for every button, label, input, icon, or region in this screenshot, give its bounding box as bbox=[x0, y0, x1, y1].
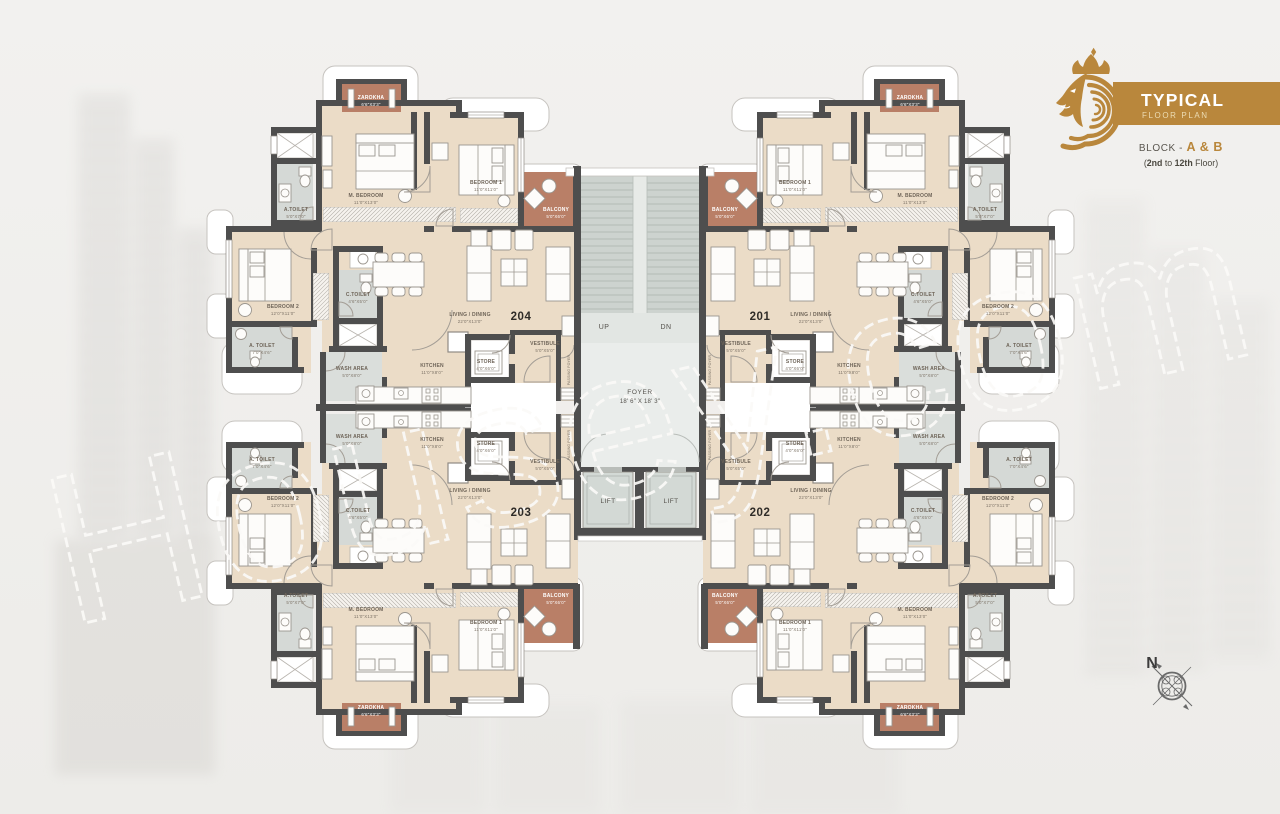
svg-text:7'0"X4'6": 7'0"X4'6" bbox=[252, 350, 272, 355]
svg-text:KITCHEN: KITCHEN bbox=[837, 437, 861, 443]
svg-text:6'6"X3'3": 6'6"X3'3" bbox=[361, 102, 381, 107]
svg-text:5'0"X8'0": 5'0"X8'0" bbox=[342, 373, 362, 378]
svg-text:12'0"X11'0": 12'0"X11'0" bbox=[986, 311, 1010, 316]
svg-text:LIVING / DINING: LIVING / DINING bbox=[790, 312, 831, 318]
svg-text:M. BEDROOM: M. BEDROOM bbox=[348, 193, 383, 199]
svg-text:PASSING FOYER: PASSING FOYER bbox=[708, 355, 712, 386]
svg-text:STORE: STORE bbox=[786, 441, 805, 447]
svg-text:6'6"X3'3": 6'6"X3'3" bbox=[900, 102, 920, 107]
svg-text:BEDROOM 2: BEDROOM 2 bbox=[982, 496, 1014, 502]
svg-text:LIVING / DINING: LIVING / DINING bbox=[790, 488, 831, 494]
svg-text:FOYER: FOYER bbox=[627, 389, 652, 396]
svg-text:PASSING FOYER: PASSING FOYER bbox=[567, 355, 571, 386]
svg-text:6'6"X3'3": 6'6"X3'3" bbox=[361, 712, 381, 717]
svg-text:M. BEDROOM: M. BEDROOM bbox=[897, 193, 932, 199]
svg-text:4'6"X5'0": 4'6"X5'0" bbox=[348, 515, 368, 520]
svg-text:M. BEDROOM: M. BEDROOM bbox=[897, 607, 932, 613]
svg-text:A.TOILET: A.TOILET bbox=[284, 207, 308, 213]
svg-text:C.TOILET: C.TOILET bbox=[911, 292, 935, 298]
svg-text:5'0"X6'0": 5'0"X6'0" bbox=[715, 214, 735, 219]
svg-text:11'0"X8'0": 11'0"X8'0" bbox=[838, 370, 860, 375]
svg-text:6'6"X3'3": 6'6"X3'3" bbox=[900, 712, 920, 717]
svg-text:11'0"X8'0": 11'0"X8'0" bbox=[838, 444, 860, 449]
svg-text:7'0"X4'6": 7'0"X4'6" bbox=[1009, 464, 1029, 469]
svg-text:5'0"X7'0": 5'0"X7'0" bbox=[975, 214, 995, 219]
svg-text:BALCONY: BALCONY bbox=[712, 593, 739, 599]
svg-text:A.TOILET: A.TOILET bbox=[284, 593, 308, 599]
svg-text:TYPICAL: TYPICAL bbox=[1141, 90, 1224, 110]
svg-text:WASH AREA: WASH AREA bbox=[913, 434, 945, 440]
svg-text:VESTIBULE: VESTIBULE bbox=[530, 341, 560, 347]
svg-text:11'0"X11'0": 11'0"X11'0" bbox=[783, 187, 807, 192]
svg-text:11'0"X11'0": 11'0"X11'0" bbox=[474, 627, 498, 632]
svg-text:BEDROOM 2: BEDROOM 2 bbox=[982, 304, 1014, 310]
svg-text:5'0"X6'0": 5'0"X6'0" bbox=[546, 600, 566, 605]
svg-text:WASH AREA: WASH AREA bbox=[336, 434, 368, 440]
svg-text:5'0"X5'0": 5'0"X5'0" bbox=[726, 466, 746, 471]
svg-text:BALCONY: BALCONY bbox=[543, 593, 570, 599]
svg-text:STORE: STORE bbox=[477, 359, 496, 365]
svg-text:BEDROOM 1: BEDROOM 1 bbox=[470, 180, 502, 186]
svg-text:5'0"X5'0": 5'0"X5'0" bbox=[535, 348, 555, 353]
svg-text:A.TOILET: A.TOILET bbox=[973, 207, 997, 213]
svg-text:FLOOR PLAN: FLOOR PLAN bbox=[1142, 111, 1209, 120]
svg-text:5'0"X8'0": 5'0"X8'0" bbox=[919, 373, 939, 378]
svg-text:BEDROOM 2: BEDROOM 2 bbox=[267, 496, 299, 502]
svg-text:PASSING FOYER: PASSING FOYER bbox=[708, 430, 712, 461]
svg-text:11'0"X13'0": 11'0"X13'0" bbox=[354, 200, 378, 205]
svg-text:5'0"X6'0": 5'0"X6'0" bbox=[715, 600, 735, 605]
svg-text:ZAROKHA: ZAROKHA bbox=[897, 95, 924, 101]
svg-text:11'0"X8'0": 11'0"X8'0" bbox=[421, 444, 443, 449]
svg-text:A. TOILET: A. TOILET bbox=[1006, 343, 1032, 349]
svg-text:4'0"X6'0": 4'0"X6'0" bbox=[785, 448, 805, 453]
svg-text:A. TOILET: A. TOILET bbox=[1006, 457, 1032, 463]
svg-text:202: 202 bbox=[750, 507, 771, 519]
svg-text:WASH AREA: WASH AREA bbox=[913, 366, 945, 372]
svg-text:BEDROOM 1: BEDROOM 1 bbox=[779, 180, 811, 186]
svg-text:LIFT: LIFT bbox=[664, 498, 679, 505]
svg-text:VESTIBULE: VESTIBULE bbox=[721, 341, 751, 347]
svg-text:KITCHEN: KITCHEN bbox=[420, 437, 444, 443]
svg-text:UP: UP bbox=[599, 324, 610, 331]
svg-text:C.TOILET: C.TOILET bbox=[346, 508, 370, 514]
svg-text:C.TOILET: C.TOILET bbox=[911, 508, 935, 514]
svg-text:11'0"X11'0": 11'0"X11'0" bbox=[474, 187, 498, 192]
svg-text:11'0"X13'0": 11'0"X13'0" bbox=[903, 614, 927, 619]
svg-text:4'0"X6'0": 4'0"X6'0" bbox=[476, 448, 496, 453]
svg-text:BLOCK - A & B: BLOCK - A & B bbox=[1139, 140, 1223, 154]
svg-text:11'0"X8'0": 11'0"X8'0" bbox=[421, 370, 443, 375]
svg-text:11'0"X11'0": 11'0"X11'0" bbox=[783, 627, 807, 632]
svg-text:BEDROOM 2: BEDROOM 2 bbox=[267, 304, 299, 310]
svg-text:LIFT: LIFT bbox=[601, 498, 616, 505]
svg-text:7'0"X4'6": 7'0"X4'6" bbox=[252, 464, 272, 469]
svg-text:5'0"X6'0": 5'0"X6'0" bbox=[546, 214, 566, 219]
svg-text:A.TOILET: A.TOILET bbox=[973, 593, 997, 599]
svg-text:12'0"X11'0": 12'0"X11'0" bbox=[986, 503, 1010, 508]
svg-text:A. TOILET: A. TOILET bbox=[249, 457, 275, 463]
svg-text:5'0"X7'0": 5'0"X7'0" bbox=[975, 600, 995, 605]
svg-text:KITCHEN: KITCHEN bbox=[420, 363, 444, 369]
svg-text:BALCONY: BALCONY bbox=[712, 207, 739, 213]
svg-text:4'6"X5'0": 4'6"X5'0" bbox=[913, 299, 933, 304]
svg-text:DN: DN bbox=[661, 324, 672, 331]
svg-text:BEDROOM 1: BEDROOM 1 bbox=[779, 620, 811, 626]
svg-text:22'0"X13'0": 22'0"X13'0" bbox=[458, 319, 483, 324]
svg-text:A. TOILET: A. TOILET bbox=[249, 343, 275, 349]
svg-text:KITCHEN: KITCHEN bbox=[837, 363, 861, 369]
svg-text:5'0"X8'0": 5'0"X8'0" bbox=[342, 441, 362, 446]
svg-text:5'0"X7'0": 5'0"X7'0" bbox=[286, 214, 306, 219]
svg-text:12'0"X11'0": 12'0"X11'0" bbox=[271, 311, 295, 316]
svg-text:VESTIBULE: VESTIBULE bbox=[721, 459, 751, 465]
svg-text:ZAROKHA: ZAROKHA bbox=[358, 95, 385, 101]
svg-text:4'6"X5'0": 4'6"X5'0" bbox=[913, 515, 933, 520]
svg-text:4'6"X5'0": 4'6"X5'0" bbox=[348, 299, 368, 304]
svg-text:5'0"X8'0": 5'0"X8'0" bbox=[919, 441, 939, 446]
svg-text:LIVING / DINING: LIVING / DINING bbox=[449, 312, 490, 318]
svg-text:WASH AREA: WASH AREA bbox=[336, 366, 368, 372]
svg-text:PASSING FOYER: PASSING FOYER bbox=[567, 430, 571, 461]
svg-text:11'0"X13'0": 11'0"X13'0" bbox=[354, 614, 378, 619]
svg-text:203: 203 bbox=[511, 507, 532, 519]
svg-text:BEDROOM 1: BEDROOM 1 bbox=[470, 620, 502, 626]
svg-text:201: 201 bbox=[750, 311, 771, 323]
svg-text:BALCONY: BALCONY bbox=[543, 207, 570, 213]
svg-text:C.TOILET: C.TOILET bbox=[346, 292, 370, 298]
svg-text:STORE: STORE bbox=[786, 359, 805, 365]
svg-text:4'0"X6'0": 4'0"X6'0" bbox=[785, 366, 805, 371]
svg-text:ZAROKHA: ZAROKHA bbox=[358, 705, 385, 711]
svg-text:N: N bbox=[1146, 655, 1158, 672]
svg-text:4'0"X6'0": 4'0"X6'0" bbox=[476, 366, 496, 371]
svg-text:12'0"X11'0": 12'0"X11'0" bbox=[271, 503, 295, 508]
svg-text:5'0"X5'0": 5'0"X5'0" bbox=[535, 466, 555, 471]
svg-text:18' 6" X 18' 3": 18' 6" X 18' 3" bbox=[620, 399, 660, 405]
svg-text:22'0"X13'0": 22'0"X13'0" bbox=[799, 495, 824, 500]
svg-text:22'0"X13'0": 22'0"X13'0" bbox=[458, 495, 483, 500]
svg-text:VESTIBULE: VESTIBULE bbox=[530, 459, 560, 465]
svg-text:11'0"X13'0": 11'0"X13'0" bbox=[903, 200, 927, 205]
svg-text:ZAROKHA: ZAROKHA bbox=[897, 705, 924, 711]
svg-text:204: 204 bbox=[511, 311, 532, 323]
svg-text:M. BEDROOM: M. BEDROOM bbox=[348, 607, 383, 613]
svg-text:22'0"X13'0": 22'0"X13'0" bbox=[799, 319, 824, 324]
svg-text:5'0"X5'0": 5'0"X5'0" bbox=[726, 348, 746, 353]
svg-text:7'0"X4'6": 7'0"X4'6" bbox=[1009, 350, 1029, 355]
svg-text:(2nd to 12th Floor): (2nd to 12th Floor) bbox=[1144, 158, 1218, 168]
svg-text:LIVING / DINING: LIVING / DINING bbox=[449, 488, 490, 494]
svg-text:STORE: STORE bbox=[477, 441, 496, 447]
svg-text:5'0"X7'0": 5'0"X7'0" bbox=[286, 600, 306, 605]
